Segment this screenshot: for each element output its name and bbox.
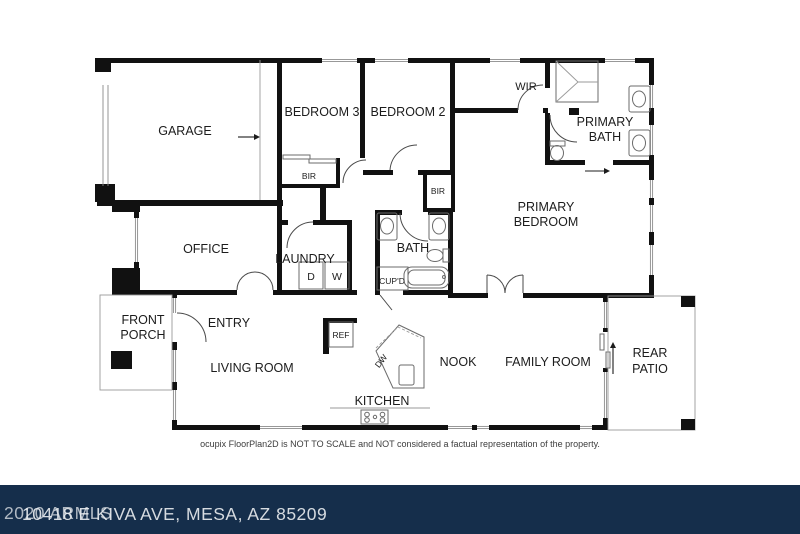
rear-patio-label-2: PATIO bbox=[632, 362, 668, 376]
front-porch-label-1: FRONT bbox=[121, 313, 164, 327]
nook-label: NOOK bbox=[440, 355, 477, 369]
porch-post bbox=[111, 351, 132, 369]
patio-post bbox=[681, 296, 695, 307]
wir-label: WIR bbox=[515, 81, 536, 93]
primary-bath-label-2: BATH bbox=[589, 130, 621, 144]
primary-bath-label-1: PRIMARY bbox=[577, 115, 634, 129]
cupboard-label: CUP'D bbox=[379, 276, 405, 286]
office-label: OFFICE bbox=[183, 242, 229, 256]
front-porch-label-2: PORCH bbox=[120, 328, 165, 342]
kitchen-label: KITCHEN bbox=[355, 394, 410, 408]
floorplan-page: GARAGE BEDROOM 3 BEDROOM 2 WIR PRIMARY B… bbox=[0, 0, 800, 534]
patio-post bbox=[681, 419, 695, 430]
laundry-label: LAUNDRY bbox=[275, 252, 335, 266]
bir2-label: BIR bbox=[431, 186, 445, 196]
rear-patio-label-1: REAR bbox=[633, 346, 668, 360]
fridge-label: REF bbox=[333, 330, 350, 340]
family-room-label: FAMILY ROOM bbox=[505, 355, 591, 369]
bedroom3-label: BEDROOM 3 bbox=[284, 105, 359, 119]
disclaimer-text: ocupix FloorPlan2D is NOT TO SCALE and N… bbox=[200, 439, 600, 449]
bir3-label: BIR bbox=[302, 171, 316, 181]
living-room-label: LIVING ROOM bbox=[210, 361, 293, 375]
bath-label: BATH bbox=[397, 241, 429, 255]
dryer-label: D bbox=[307, 271, 315, 283]
armls-watermark: 2020 ARMLS bbox=[4, 503, 112, 523]
primary-bedroom-label-1: PRIMARY bbox=[518, 200, 575, 214]
bedroom2-label: BEDROOM 2 bbox=[370, 105, 445, 119]
footer: 10418 E KIVA AVE, MESA, AZ 85209 2020 AR… bbox=[0, 485, 800, 534]
primary-bedroom-label-2: BEDROOM bbox=[514, 215, 579, 229]
entry-label: ENTRY bbox=[208, 316, 251, 330]
garage-label: GARAGE bbox=[158, 124, 212, 138]
washer-label: W bbox=[332, 271, 342, 283]
floorplan-image: GARAGE BEDROOM 3 BEDROOM 2 WIR PRIMARY B… bbox=[0, 0, 800, 534]
